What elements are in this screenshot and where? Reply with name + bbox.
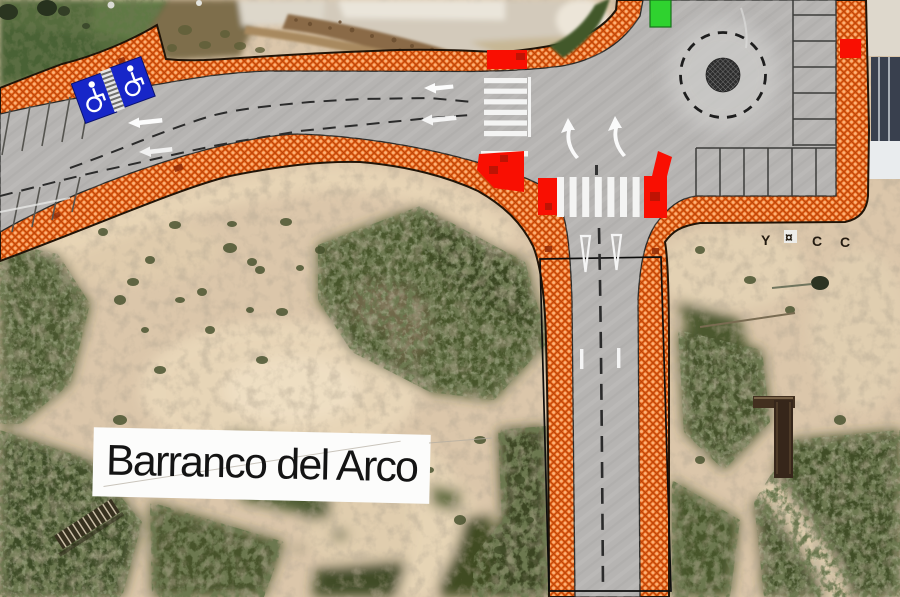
svg-text:¤: ¤ <box>785 229 793 245</box>
svg-text:Y: Y <box>761 232 771 248</box>
svg-text:C: C <box>812 233 822 249</box>
svg-text:Barranco del Arco: Barranco del Arco <box>106 437 419 492</box>
svg-text:C: C <box>840 234 850 250</box>
